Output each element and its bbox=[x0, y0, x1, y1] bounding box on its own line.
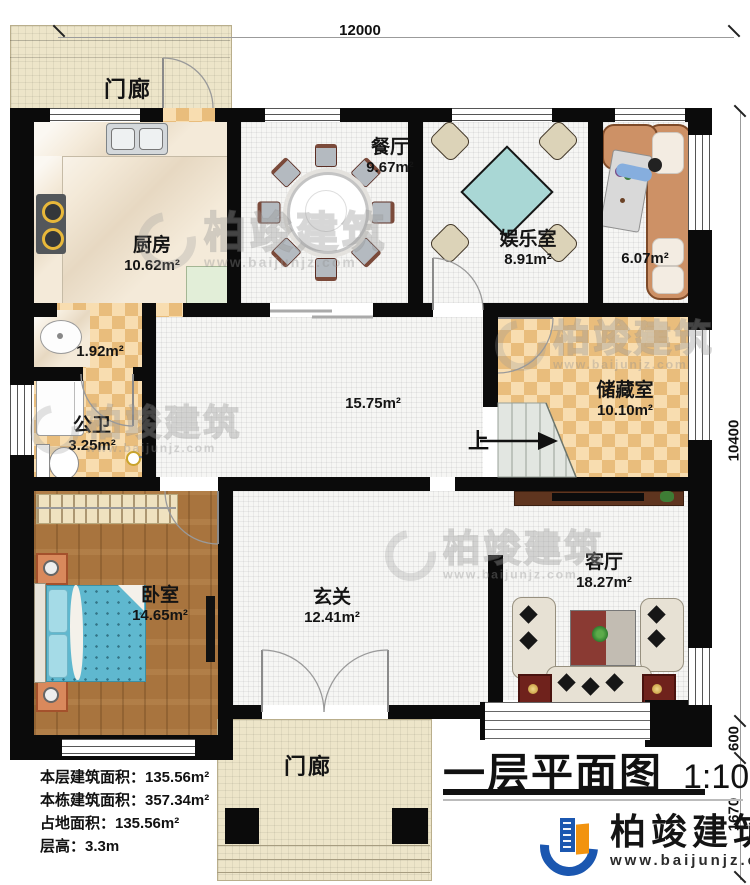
wall-segment bbox=[183, 303, 270, 317]
wall-segment bbox=[233, 705, 262, 719]
wall-segment bbox=[10, 108, 50, 122]
room-name: 门廊 bbox=[104, 78, 152, 102]
room-area: 9.67m² bbox=[366, 159, 414, 176]
room-name: 厨房 bbox=[124, 236, 180, 257]
porch-step-line bbox=[217, 872, 430, 873]
side-table-decor bbox=[528, 684, 538, 694]
wardrobe bbox=[36, 494, 178, 524]
wall-bath-hall bbox=[142, 303, 156, 477]
window bbox=[688, 330, 712, 440]
dining-chair bbox=[258, 202, 281, 224]
stairs-up-label: 上 bbox=[468, 425, 489, 455]
wall-segment bbox=[10, 455, 34, 760]
room-label-lounge: 6.07m² bbox=[621, 250, 669, 267]
room-area: 10.10m² bbox=[596, 402, 653, 419]
room-name: 娱乐室 bbox=[499, 230, 556, 251]
room-area: 6.07m² bbox=[621, 250, 669, 267]
wall-segment bbox=[10, 303, 57, 317]
wall-segment bbox=[388, 705, 480, 719]
wall-segment bbox=[688, 230, 712, 330]
room-label-bedroom: 卧室 14.65m² bbox=[132, 586, 188, 624]
room-label-porch-top: 门廊 bbox=[104, 78, 152, 102]
room-area: 14.65m² bbox=[132, 607, 188, 624]
porch-column bbox=[392, 808, 428, 844]
window bbox=[10, 385, 34, 455]
dining-chair bbox=[315, 258, 337, 281]
porch-step-line bbox=[217, 845, 430, 846]
wall-segment bbox=[552, 108, 615, 122]
company-name: 柏竣建筑 bbox=[610, 814, 750, 850]
room-name: 公卫 bbox=[68, 416, 116, 437]
wall-bedroom-foyer bbox=[218, 491, 233, 735]
wall-storage-top bbox=[483, 303, 688, 317]
wall-hall-storage bbox=[483, 317, 498, 407]
room-area: 10.62m² bbox=[124, 257, 180, 274]
sofa-cushion bbox=[652, 266, 684, 294]
wall-segment bbox=[685, 108, 712, 122]
title-underline-thick bbox=[443, 789, 705, 795]
stove-burner bbox=[42, 201, 64, 223]
porch-top-line bbox=[10, 57, 230, 58]
dining-chair bbox=[372, 202, 395, 224]
dining-chair bbox=[315, 144, 337, 167]
bed-pillow bbox=[48, 589, 68, 633]
cabinet-plant bbox=[660, 491, 674, 502]
room-area: 1.92m² bbox=[76, 343, 124, 360]
dimension-tick bbox=[728, 25, 741, 38]
room-label-bathroom: 公卫 3.25m² bbox=[68, 416, 116, 454]
rug-plant bbox=[592, 626, 608, 642]
stove-burner bbox=[42, 228, 64, 250]
porch-step-line bbox=[217, 859, 430, 860]
wall-segment bbox=[218, 477, 430, 491]
room-name: 卧室 bbox=[132, 586, 188, 607]
wall-wash-bath bbox=[10, 367, 83, 381]
wall-segment bbox=[10, 477, 160, 491]
room-label-hall: 15.75m² bbox=[345, 395, 401, 412]
wall-segment bbox=[373, 303, 433, 317]
window bbox=[615, 108, 685, 122]
room-label-wash: 1.92m² bbox=[76, 343, 124, 360]
window bbox=[452, 108, 552, 122]
floor-plan-canvas: 门廊 厨房 10.62m² 餐厅 9.67m² 娱乐室 8.91m² 6.07m… bbox=[0, 0, 750, 885]
window bbox=[265, 108, 340, 122]
porch-column bbox=[225, 808, 259, 844]
wall-segment bbox=[133, 367, 142, 381]
porch-bottom-floor bbox=[217, 719, 432, 881]
room-area: 15.75m² bbox=[345, 395, 401, 412]
fridge bbox=[186, 266, 228, 305]
bed-sheet-fold bbox=[70, 585, 83, 680]
dining-table-inner bbox=[305, 190, 347, 232]
title-underline-thin bbox=[443, 799, 743, 801]
sink-basin bbox=[111, 128, 135, 150]
room-area: 3.25m² bbox=[68, 437, 116, 454]
wall-storage-bottom bbox=[455, 477, 688, 491]
wall-segment bbox=[688, 440, 712, 648]
company-logo-icon bbox=[538, 812, 600, 874]
sink-basin bbox=[139, 128, 163, 150]
hall-floor bbox=[156, 317, 483, 477]
wall-segment bbox=[340, 108, 452, 122]
dimension-right-height: 10400 bbox=[726, 401, 743, 481]
person-head bbox=[648, 158, 662, 172]
room-label-foyer: 玄关 12.41m² bbox=[304, 588, 360, 626]
dimension-top-width: 12000 bbox=[300, 22, 420, 39]
room-label-storage: 储藏室 10.10m² bbox=[596, 381, 653, 419]
window bbox=[688, 135, 712, 230]
company-logo: 柏竣建筑 www.baijunjz.com bbox=[538, 812, 750, 874]
foyer-floor bbox=[233, 491, 503, 705]
wall-segment bbox=[688, 122, 712, 135]
info-footprint-area: 占地面积：135.56m² bbox=[40, 812, 209, 835]
bed-headboard bbox=[34, 583, 46, 683]
window-bay bbox=[480, 702, 650, 740]
nightstand-lamp bbox=[43, 560, 59, 576]
room-label-porch-bottom: 门廊 bbox=[284, 755, 332, 779]
porch-top-line bbox=[10, 40, 230, 41]
storage-floor bbox=[498, 317, 688, 477]
wall-segment bbox=[140, 108, 163, 122]
info-block: 本层建筑面积：135.56m² 本栋建筑面积：357.34m² 占地面积：135… bbox=[40, 766, 209, 858]
room-label-living: 客厅 18.27m² bbox=[576, 553, 632, 591]
wall-segment bbox=[215, 108, 265, 122]
wall-segment bbox=[10, 122, 34, 385]
window bbox=[62, 739, 195, 756]
living-tv bbox=[552, 493, 644, 501]
room-label-kitchen: 厨房 10.62m² bbox=[124, 236, 180, 274]
wall-foyer-living bbox=[488, 555, 503, 712]
info-building-area: 本栋建筑面积：357.34m² bbox=[40, 789, 209, 812]
side-table-decor bbox=[652, 684, 662, 694]
info-floor-area: 本层建筑面积：135.56m² bbox=[40, 766, 209, 789]
room-name: 玄关 bbox=[304, 588, 360, 609]
room-area: 8.91m² bbox=[499, 251, 556, 268]
table-item bbox=[620, 198, 625, 203]
wall-kitchen-dining bbox=[227, 122, 241, 303]
kitchen-hall-passage bbox=[156, 303, 183, 317]
basin-drain bbox=[57, 333, 63, 339]
bed-pillow bbox=[48, 634, 68, 678]
floor-drain bbox=[126, 451, 141, 466]
room-label-entertainment: 娱乐室 8.91m² bbox=[499, 230, 556, 268]
room-name: 储藏室 bbox=[596, 381, 653, 402]
window bbox=[50, 108, 140, 122]
window bbox=[688, 648, 712, 705]
bedroom-tv bbox=[206, 596, 215, 662]
room-area: 18.27m² bbox=[576, 574, 632, 591]
room-area: 12.41m² bbox=[304, 609, 360, 626]
wardrobe-rail bbox=[36, 507, 176, 509]
room-name: 客厅 bbox=[576, 553, 632, 574]
info-floor-height: 层高：3.3m bbox=[40, 835, 209, 858]
company-website: www.baijunjz.com bbox=[610, 850, 750, 873]
wall-entertainment-lounge bbox=[588, 122, 603, 303]
nightstand-lamp bbox=[43, 687, 59, 703]
room-name: 餐厅 bbox=[366, 138, 414, 159]
room-label-dining: 餐厅 9.67m² bbox=[366, 138, 414, 176]
room-name: 门廊 bbox=[284, 755, 332, 779]
